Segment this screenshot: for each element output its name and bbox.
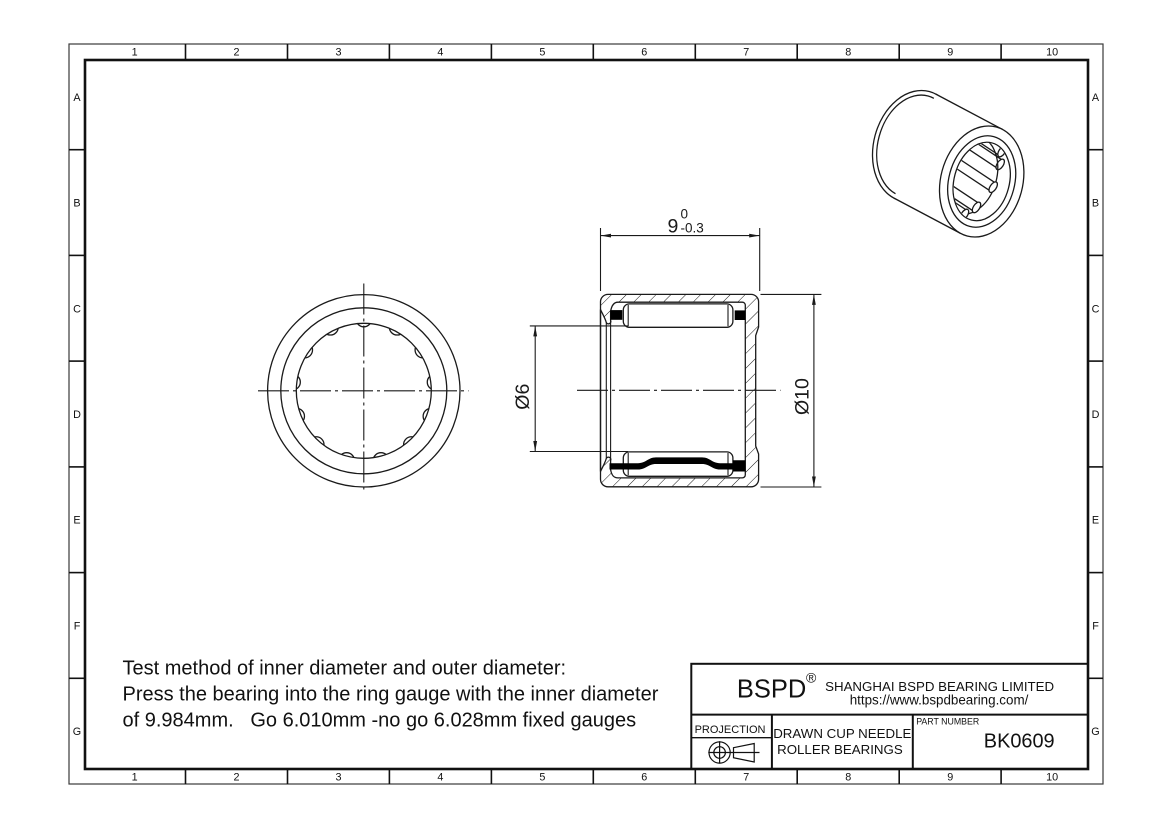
svg-text:of 9.984mm. Go 6.010mm -no g: of 9.984mm. Go 6.010mm -no go 6.028mm fi… xyxy=(123,709,637,731)
svg-text:B: B xyxy=(73,198,80,210)
svg-text:C: C xyxy=(1092,303,1100,315)
svg-text:SHANGHAI BSPD BEARING LIMITED: SHANGHAI BSPD BEARING LIMITED xyxy=(825,679,1054,694)
svg-text:10: 10 xyxy=(1046,47,1058,59)
svg-text:7: 7 xyxy=(743,47,749,59)
svg-text:BK0609: BK0609 xyxy=(984,731,1055,753)
svg-text:A: A xyxy=(73,92,81,104)
svg-text:1: 1 xyxy=(132,772,138,784)
svg-text:ROLLER BEARINGS: ROLLER BEARINGS xyxy=(777,742,903,757)
svg-text:G: G xyxy=(73,726,81,738)
svg-text:2: 2 xyxy=(233,47,239,59)
svg-text:D: D xyxy=(1092,409,1100,421)
svg-text:6: 6 xyxy=(641,47,647,59)
svg-text:https://www.bspdbearing.com/: https://www.bspdbearing.com/ xyxy=(850,693,1029,708)
svg-text:Ø6: Ø6 xyxy=(512,384,534,410)
svg-text:6: 6 xyxy=(641,772,647,784)
svg-text:C: C xyxy=(73,303,81,315)
svg-text:-0.3: -0.3 xyxy=(681,221,704,236)
svg-text:3: 3 xyxy=(335,772,341,784)
svg-text:PART NUMBER: PART NUMBER xyxy=(916,716,979,726)
svg-text:A: A xyxy=(1092,92,1100,104)
svg-text:Ø10: Ø10 xyxy=(792,378,814,415)
svg-text:®: ® xyxy=(806,670,817,686)
svg-text:8: 8 xyxy=(845,47,851,59)
svg-text:5: 5 xyxy=(539,47,545,59)
svg-text:4: 4 xyxy=(437,47,443,59)
svg-text:BSPD: BSPD xyxy=(737,676,806,704)
svg-text:PROJECTION: PROJECTION xyxy=(695,724,766,736)
svg-text:8: 8 xyxy=(845,772,851,784)
svg-text:D: D xyxy=(73,409,81,421)
svg-text:E: E xyxy=(1092,515,1099,527)
svg-text:DRAWN CUP NEEDLE: DRAWN CUP NEEDLE xyxy=(773,726,911,741)
svg-text:F: F xyxy=(74,620,81,632)
svg-text:9: 9 xyxy=(947,772,953,784)
svg-text:1: 1 xyxy=(132,47,138,59)
svg-text:5: 5 xyxy=(539,772,545,784)
svg-text:9: 9 xyxy=(668,216,679,238)
svg-text:9: 9 xyxy=(947,47,953,59)
svg-text:Press the bearing into the rin: Press the bearing into the ring gauge wi… xyxy=(123,683,659,705)
svg-text:3: 3 xyxy=(335,47,341,59)
svg-text:4: 4 xyxy=(437,772,443,784)
svg-text:7: 7 xyxy=(743,772,749,784)
svg-text:E: E xyxy=(73,515,80,527)
svg-text:0: 0 xyxy=(681,207,689,222)
svg-text:F: F xyxy=(1092,620,1099,632)
svg-text:Test method of inner diameter: Test method of inner diameter and outer … xyxy=(123,657,567,679)
svg-text:2: 2 xyxy=(233,772,239,784)
svg-text:B: B xyxy=(1092,198,1099,210)
svg-text:10: 10 xyxy=(1046,772,1058,784)
svg-text:G: G xyxy=(1091,726,1099,738)
